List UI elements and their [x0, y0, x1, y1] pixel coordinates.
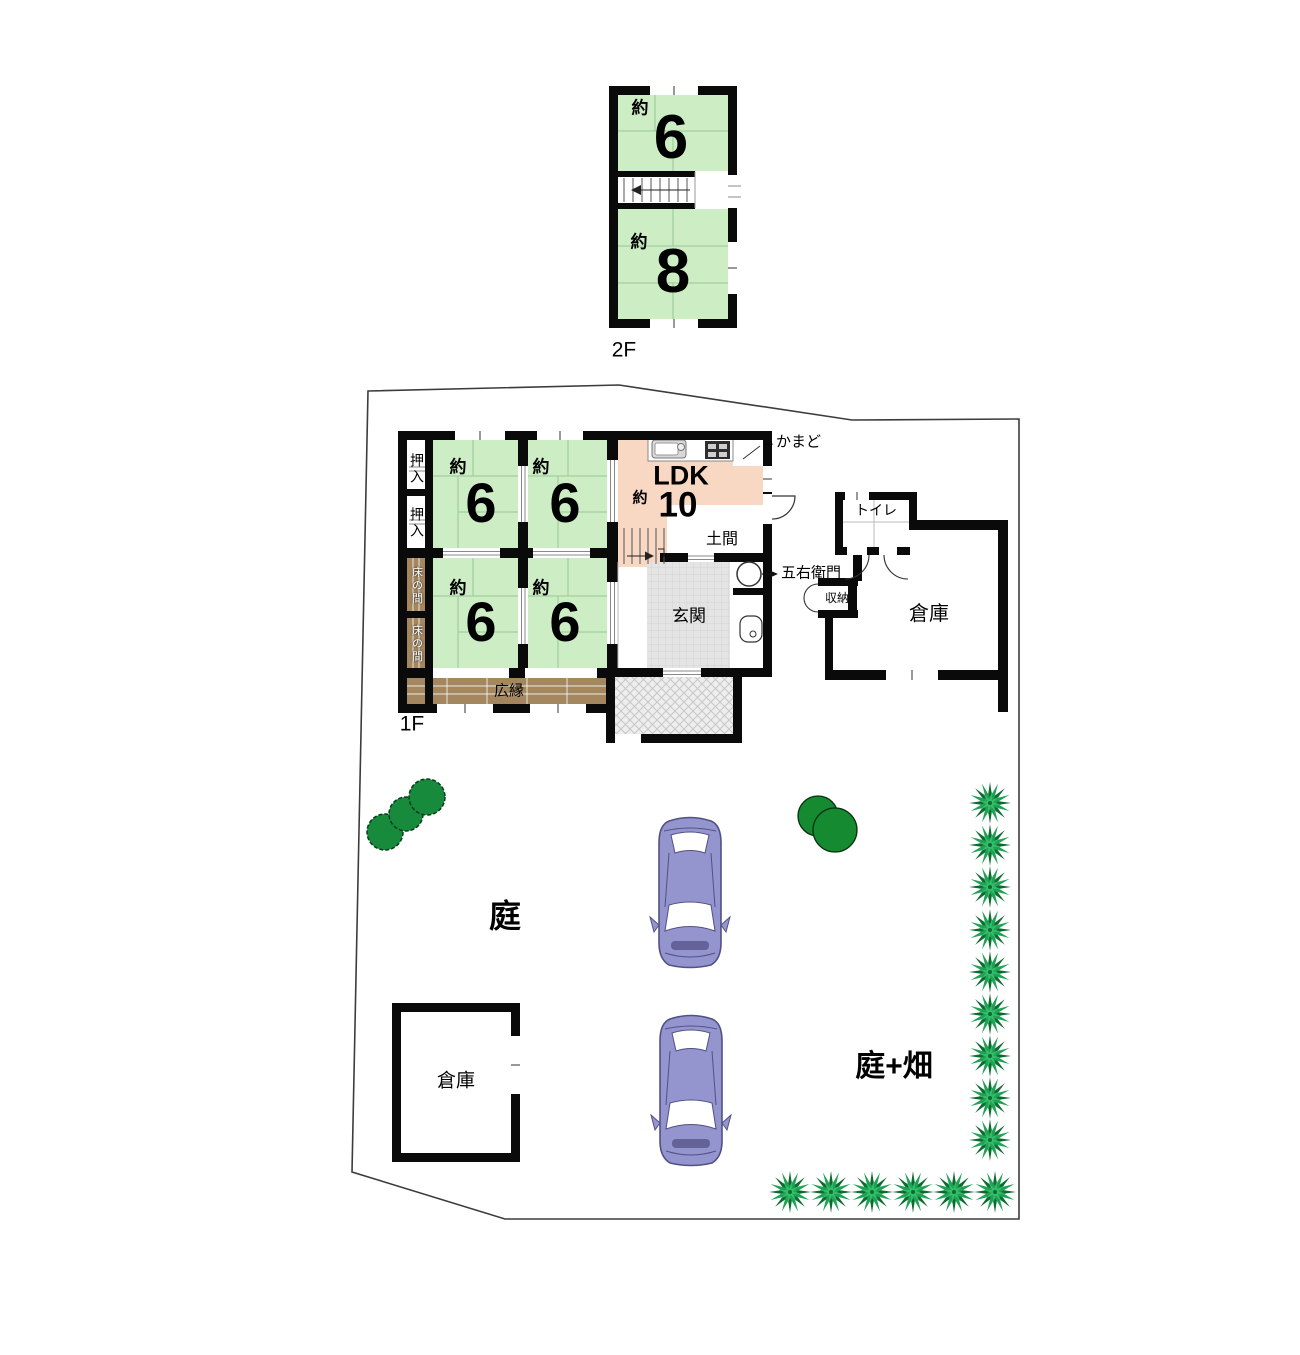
- tokonoma-2-label: 床の間: [411, 625, 422, 664]
- porch-floor: [615, 677, 733, 734]
- floor2-label: 2F: [612, 340, 637, 361]
- car-2: [651, 1016, 731, 1166]
- hiroen-label: 広縁: [494, 684, 524, 699]
- floor2-room8-prefix: 約: [631, 234, 648, 251]
- goemon-note: 五右衛門: [781, 566, 841, 581]
- floorplan-page: 約 6 約 8 2F 約 6 約 6 約 6 約 6 LDK 約 10 土間 玄…: [0, 0, 1300, 1355]
- site-warehouse-label: 倉庫: [437, 1072, 475, 1091]
- oshiire-2-label: 押入: [410, 507, 424, 539]
- kamado-note: →かまど: [761, 435, 821, 450]
- storage-small-label: 収納: [825, 592, 849, 604]
- floor2-room6-size: 6: [654, 107, 688, 169]
- room4-prefix: 約: [533, 580, 550, 597]
- room2-size: 6: [549, 475, 580, 531]
- garden-field-label: 庭+畑: [855, 1052, 933, 1082]
- floor2-room6-prefix: 約: [632, 100, 649, 117]
- room2-prefix: 約: [533, 459, 550, 476]
- room3-size: 6: [465, 594, 496, 650]
- toilet-label: トイレ: [855, 503, 897, 517]
- tokonoma-1-label: 床の間: [411, 567, 422, 606]
- floorplan-canvas: [0, 0, 1300, 1355]
- room1-size: 6: [465, 475, 496, 531]
- goemon-bath-icon: [737, 562, 761, 586]
- genkan-label: 玄関: [672, 608, 706, 625]
- garden-label: 庭: [489, 900, 521, 932]
- room4-size: 6: [549, 594, 580, 650]
- ldk-prefix: 約: [632, 491, 647, 506]
- annex-warehouse-label: 倉庫: [909, 604, 949, 624]
- doma-label: 土間: [706, 532, 738, 548]
- floor1-label: 1F: [400, 714, 425, 735]
- room3-prefix: 約: [450, 580, 467, 597]
- oshiire-1-label: 押入: [410, 453, 424, 485]
- room1-prefix: 約: [450, 459, 467, 476]
- floor2-room8-size: 8: [656, 241, 690, 303]
- basin-icon: [740, 616, 762, 642]
- ldk-size: 10: [659, 488, 698, 523]
- car-1: [650, 818, 730, 968]
